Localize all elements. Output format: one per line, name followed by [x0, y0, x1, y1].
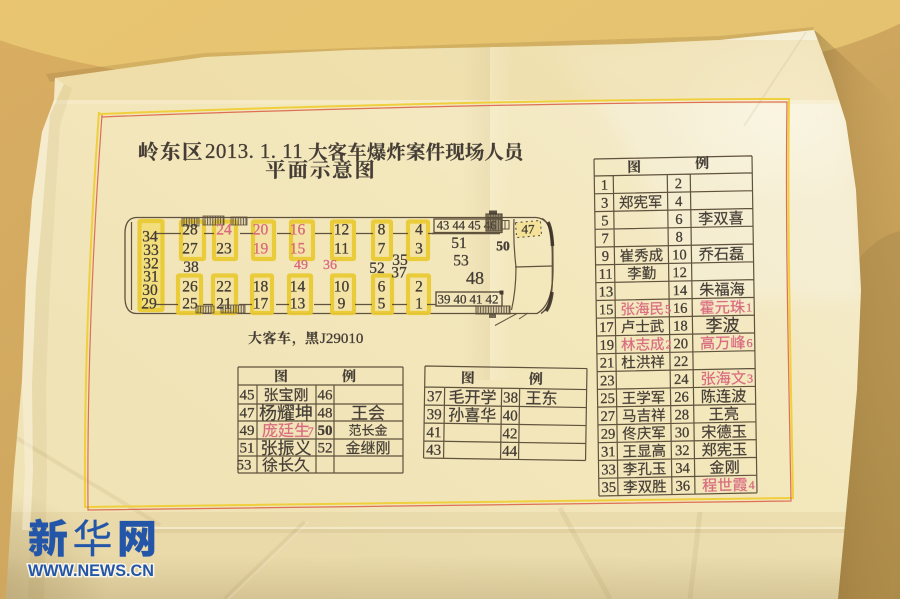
svg-text:40: 40 [503, 408, 518, 424]
svg-text:15: 15 [290, 241, 306, 258]
svg-text:5: 5 [665, 302, 671, 316]
svg-text:12: 12 [672, 265, 687, 281]
svg-text:45: 45 [468, 219, 481, 233]
svg-text:11: 11 [599, 266, 613, 282]
svg-text:49: 49 [240, 423, 255, 439]
svg-text:6: 6 [746, 336, 752, 350]
svg-text:44: 44 [502, 444, 518, 460]
svg-text:21: 21 [600, 355, 615, 371]
svg-text:14: 14 [673, 283, 688, 299]
svg-text:48: 48 [466, 268, 484, 288]
svg-text:20: 20 [253, 222, 269, 239]
svg-text:1: 1 [746, 300, 752, 314]
svg-text:51: 51 [451, 235, 467, 252]
svg-text:49: 49 [294, 258, 308, 273]
svg-text:WWW.NEWS.CN: WWW.NEWS.CN [28, 562, 154, 580]
svg-text:17: 17 [253, 296, 269, 313]
svg-text:44: 44 [452, 219, 465, 233]
svg-text:10: 10 [334, 279, 350, 296]
svg-text:2013. 1. 11: 2013. 1. 11 [205, 139, 303, 163]
svg-text:27: 27 [600, 409, 615, 425]
svg-text:47: 47 [240, 406, 256, 422]
svg-text:50: 50 [318, 423, 333, 439]
svg-text:14: 14 [290, 279, 306, 296]
svg-text:36: 36 [676, 478, 691, 494]
svg-text:29: 29 [141, 296, 157, 313]
svg-text:4: 4 [675, 194, 683, 210]
svg-text:5: 5 [378, 296, 386, 313]
svg-text:34: 34 [675, 461, 690, 477]
svg-text:2: 2 [665, 337, 671, 351]
svg-text:23: 23 [600, 373, 615, 389]
svg-text:16: 16 [673, 301, 688, 317]
svg-text:36: 36 [323, 258, 337, 273]
svg-text:25: 25 [182, 296, 198, 313]
svg-text:J29010: J29010 [320, 331, 363, 347]
svg-text:45: 45 [240, 388, 255, 404]
svg-text:52: 52 [369, 260, 385, 277]
svg-text:40: 40 [454, 292, 467, 307]
svg-text:4: 4 [415, 222, 423, 239]
svg-text:37: 37 [391, 265, 407, 282]
svg-text:3: 3 [747, 371, 753, 385]
svg-text:18: 18 [253, 279, 269, 296]
svg-text:53: 53 [453, 253, 469, 270]
svg-text:39: 39 [438, 292, 451, 307]
svg-text:50: 50 [496, 239, 510, 254]
svg-text:39: 39 [427, 407, 442, 423]
svg-text:32: 32 [675, 443, 690, 459]
svg-text:7: 7 [308, 424, 314, 438]
svg-text:22: 22 [674, 354, 689, 370]
svg-text:10: 10 [672, 247, 687, 263]
svg-text:2: 2 [415, 279, 423, 296]
svg-text:1: 1 [601, 178, 608, 194]
svg-text:27: 27 [182, 241, 198, 258]
svg-text:15: 15 [599, 302, 614, 318]
svg-text:47: 47 [522, 222, 536, 237]
svg-text:19: 19 [253, 241, 269, 258]
svg-text:26: 26 [674, 389, 689, 405]
svg-text:17: 17 [599, 320, 614, 336]
svg-text:19: 19 [599, 338, 614, 354]
svg-text:28: 28 [674, 407, 689, 423]
svg-text:28: 28 [182, 222, 198, 239]
svg-text:11: 11 [334, 241, 349, 258]
svg-text:52: 52 [318, 441, 333, 457]
svg-text:5: 5 [601, 213, 608, 229]
svg-text:42: 42 [502, 426, 517, 442]
svg-text:3: 3 [601, 195, 608, 211]
svg-text:43: 43 [426, 443, 441, 459]
svg-text:25: 25 [600, 391, 615, 407]
svg-text:21: 21 [216, 296, 232, 313]
svg-text:46: 46 [318, 388, 334, 404]
svg-text:30: 30 [675, 425, 690, 441]
svg-text:3: 3 [415, 241, 423, 258]
svg-text:4: 4 [749, 478, 755, 492]
svg-text:6: 6 [378, 279, 386, 296]
svg-text:6: 6 [675, 212, 682, 228]
svg-text:53: 53 [237, 458, 252, 474]
svg-text:33: 33 [601, 462, 616, 478]
svg-text:22: 22 [216, 279, 232, 296]
svg-text:9: 9 [338, 296, 346, 313]
svg-text:41: 41 [470, 292, 483, 307]
svg-text:29: 29 [601, 426, 616, 442]
svg-text:12: 12 [334, 222, 350, 239]
svg-text:38: 38 [503, 390, 518, 406]
svg-text:43: 43 [437, 219, 450, 233]
svg-text:8: 8 [675, 229, 682, 245]
svg-text:1: 1 [415, 296, 423, 313]
svg-text:18: 18 [673, 318, 688, 334]
svg-text:41: 41 [426, 425, 441, 441]
svg-text:26: 26 [182, 279, 198, 296]
svg-text:9: 9 [602, 249, 609, 265]
svg-text:31: 31 [601, 444, 616, 460]
svg-text:51: 51 [240, 441, 255, 457]
svg-text:23: 23 [216, 241, 232, 258]
svg-text:7: 7 [601, 231, 608, 247]
svg-text:42: 42 [486, 292, 499, 307]
svg-text:13: 13 [599, 284, 614, 300]
svg-text:8: 8 [378, 222, 386, 239]
svg-text:35: 35 [602, 480, 617, 496]
svg-text:16: 16 [290, 222, 306, 239]
svg-text:48: 48 [318, 406, 333, 422]
svg-text:13: 13 [290, 296, 306, 313]
svg-text:24: 24 [674, 372, 689, 388]
svg-text:2: 2 [675, 176, 682, 192]
svg-text:24: 24 [216, 222, 232, 239]
svg-text:37: 37 [427, 389, 443, 405]
svg-text:7: 7 [378, 241, 386, 258]
svg-text:38: 38 [183, 259, 199, 276]
svg-text:20: 20 [673, 336, 688, 352]
